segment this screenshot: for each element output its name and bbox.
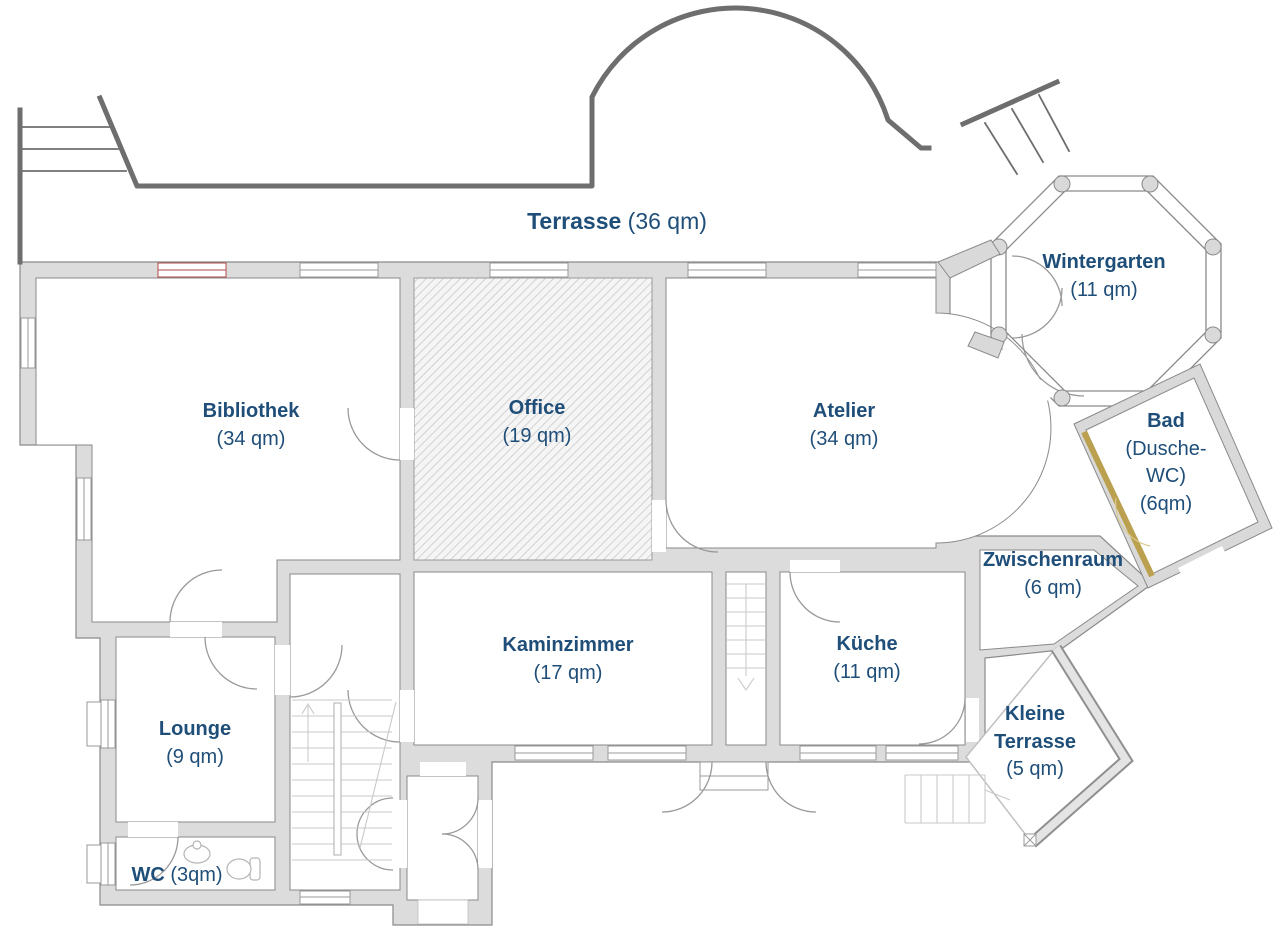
room-name: WC xyxy=(131,864,164,886)
room-label-office: Office (19 qm) xyxy=(437,395,637,450)
room-label-kleine-terrasse: Kleine Terrasse (5 qm) xyxy=(974,701,1096,784)
room-area: (34 qm) xyxy=(151,426,351,454)
room-area: (34 qm) xyxy=(744,426,944,454)
room-label-zwischenraum: Zwischenraum (6 qm) xyxy=(948,547,1158,602)
room-name: Wintergarten xyxy=(1004,249,1204,277)
room-name: Office xyxy=(437,395,637,423)
room-label-atelier: Atelier (34 qm) xyxy=(744,398,944,453)
room-name: Terrasse xyxy=(527,208,621,234)
room-label-bad: Bad (Dusche-WC) (6qm) xyxy=(1116,408,1216,518)
room-name: Bad xyxy=(1116,408,1216,436)
room-area: (5 qm) xyxy=(974,756,1096,784)
room-name: Atelier xyxy=(744,398,944,426)
room-name: Küche xyxy=(767,631,967,659)
room-label-kaminzimmer: Kaminzimmer (17 qm) xyxy=(468,632,668,687)
room-area: (3qm) xyxy=(170,864,222,886)
room-name: Lounge xyxy=(95,716,295,744)
kleine-terrasse-corner-glyph xyxy=(1024,834,1036,846)
room-area: (6 qm) xyxy=(948,575,1158,603)
room-area: (17 qm) xyxy=(468,660,668,688)
floor-plan-drawing xyxy=(0,0,1280,947)
floor-plan: Terrasse (36 qm) Wintergarten (11 qm) Bi… xyxy=(0,0,1280,947)
room-label-wintergarten: Wintergarten (11 qm) xyxy=(1004,249,1204,304)
room-area: (6qm) xyxy=(1116,491,1216,519)
room-area: (19 qm) xyxy=(437,423,637,451)
room-label-lounge: Lounge (9 qm) xyxy=(95,716,295,771)
room-name: Bibliothek xyxy=(151,398,351,426)
room-name: Zwischenraum xyxy=(948,547,1158,575)
room-label-bibliothek: Bibliothek (34 qm) xyxy=(151,398,351,453)
room-area: (36 qm) xyxy=(628,208,707,234)
room-detail: (Dusche-WC) xyxy=(1116,436,1216,491)
room-label-wc: WC (3qm) xyxy=(92,862,262,890)
room-area: (11 qm) xyxy=(767,659,967,687)
vestibule-floor xyxy=(407,776,478,900)
room-label-terrasse: Terrasse (36 qm) xyxy=(447,206,787,238)
entrance-gap xyxy=(418,900,468,924)
room-name: Kleine Terrasse xyxy=(974,701,1096,756)
room-label-kueche: Küche (11 qm) xyxy=(767,631,967,686)
room-area: (11 qm) xyxy=(1004,277,1204,305)
room-name: Kaminzimmer xyxy=(468,632,668,660)
room-area: (9 qm) xyxy=(95,744,295,772)
